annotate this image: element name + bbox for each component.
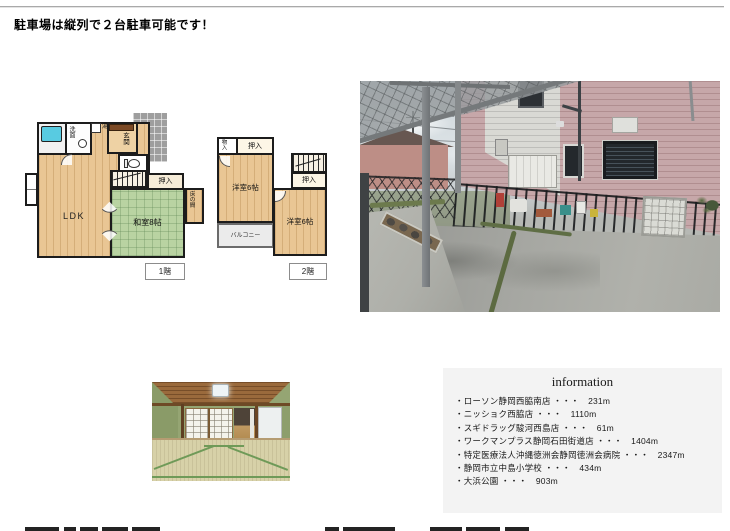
bricks: [536, 209, 552, 217]
white-lattice-panel: [641, 196, 687, 238]
clipped-glyphs: [325, 527, 339, 531]
information-item: ・静岡市立中島小学校 ・・・ 434m: [455, 462, 722, 475]
balcony: バルコニー: [217, 223, 274, 248]
floorplan-2f: 物入 押入 洋室6帖 バルコニー 押入 洋室6帖: [217, 136, 327, 256]
balcony-label: バルコニー: [219, 225, 272, 246]
clipped-glyphs: [343, 527, 395, 531]
tatami-edge-line: [152, 476, 290, 478]
ceiling-light: [212, 384, 229, 397]
vent: [556, 121, 564, 127]
sliding-door: [258, 407, 282, 440]
shoe-cabinet: [109, 124, 134, 131]
kitchen-counter-line: [27, 189, 36, 190]
clipped-glyphs: [132, 527, 160, 531]
teal-box: [560, 205, 571, 215]
wood-post: [181, 404, 184, 440]
information-item: ・スギドラッグ駿河西島店 ・・・ 61m: [455, 422, 722, 435]
door-edge: [250, 409, 254, 438]
top-divider: [0, 6, 724, 8]
information-box: information ・ローソン静岡西脇南店 ・・・ 231m・ニッショク西脇…: [443, 368, 722, 513]
louver-window: [603, 141, 657, 179]
green-wall: [282, 406, 290, 440]
floor-2-label: 2階: [289, 263, 327, 280]
small-sign: [576, 201, 586, 214]
information-item: ・ローソン静岡西脇南店 ・・・ 231m: [455, 395, 722, 408]
information-item: ・大浜公園 ・・・ 903m: [455, 475, 722, 488]
entrance-label: 玄関: [121, 132, 128, 145]
clipped-glyphs: [64, 527, 76, 531]
clipped-glyphs: [25, 527, 59, 531]
shoji-divider: [208, 408, 210, 440]
clipped-glyphs: [505, 527, 529, 531]
clipped-glyphs: [80, 527, 98, 531]
information-item: ・ニッショク西脇店 ・・・ 1110m: [455, 408, 722, 421]
downpipe: [578, 81, 581, 181]
clipped-glyphs: [466, 527, 500, 531]
white-bags: [510, 199, 527, 212]
red-object: [496, 193, 504, 207]
information-item: ・特定医療法人沖縄徳洲会静岡徳洲会病院 ・・・ 2347m: [455, 449, 722, 462]
storage-label: 物入: [220, 139, 226, 150]
clipped-glyphs: [102, 527, 128, 531]
fence-post: [360, 173, 369, 312]
tokonoma-label: 床の間: [188, 191, 194, 208]
white-panel: [508, 155, 557, 188]
wall-box: [612, 117, 638, 133]
page-title: 駐車場は縦列で２台駐車可能です！: [14, 16, 214, 33]
carport-post: [422, 87, 430, 287]
clipped-glyphs: [430, 527, 462, 531]
utility-box: [495, 139, 508, 156]
yellow-object: [590, 209, 598, 217]
closet-2f-right: 押入: [291, 172, 327, 189]
bathtub: [41, 126, 62, 142]
toilet-icon: [128, 159, 140, 168]
japanese-room-label: 和室8帖: [110, 188, 185, 258]
floor-1-label: 1階: [145, 263, 185, 280]
listing-page: 駐車場は縦列で２台駐車可能です！ 洗面 湯 玄関 押入 和室8帖 床の間 LDK…: [0, 0, 730, 531]
stairs-2f: [291, 153, 327, 173]
parking-photo[interactable]: [360, 81, 720, 312]
carport-post: [455, 81, 461, 193]
wood-beam: [152, 403, 290, 406]
information-title: information: [443, 368, 722, 390]
information-list: ・ローソン静岡西脇南店 ・・・ 231m・ニッショク西脇店 ・・・ 1110m・…: [455, 395, 722, 489]
tatami-room-photo[interactable]: [152, 382, 290, 481]
information-item: ・ワークマンプラス静岡石田街道店 ・・・ 1404m: [455, 435, 722, 448]
water-heater: [91, 123, 101, 133]
sink-icon: [78, 139, 87, 148]
washroom-label: 洗面: [68, 126, 74, 138]
floorplan-1f: 洗面 湯 玄関 押入 和室8帖 床の間 LDK: [25, 112, 205, 260]
ldk-label: LDK: [63, 212, 85, 221]
garden-plants: [694, 191, 720, 215]
